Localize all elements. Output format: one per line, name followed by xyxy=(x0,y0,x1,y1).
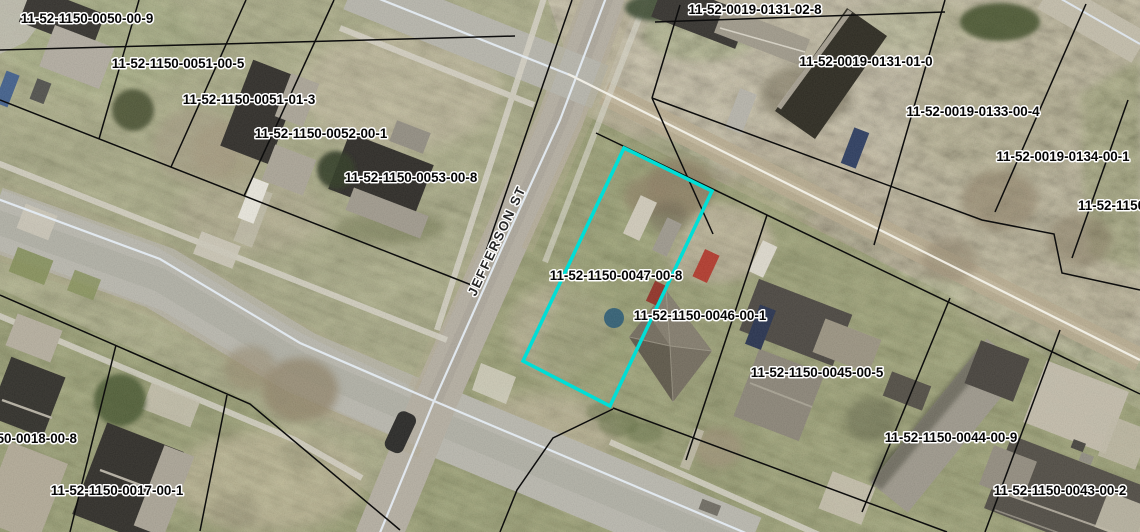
svg-text:11-52-0019-0133-00-4: 11-52-0019-0133-00-4 xyxy=(906,104,1040,119)
svg-text:11-52-1150-0050-00-9: 11-52-1150-0050-00-9 xyxy=(21,11,154,26)
svg-text:11-52-1150-0045-00-5: 11-52-1150-0045-00-5 xyxy=(751,365,884,380)
svg-text:11-52-0019-0131-02-8: 11-52-0019-0131-02-8 xyxy=(688,2,822,17)
svg-text:11-52-1150-0053-00-8: 11-52-1150-0053-00-8 xyxy=(345,170,478,185)
svg-text:11-52-1150-0051-01-3: 11-52-1150-0051-01-3 xyxy=(183,92,316,107)
svg-text:11-52-1150-0017-00-1: 11-52-1150-0017-00-1 xyxy=(51,483,184,498)
svg-text:11-52-1150-0047-00-8: 11-52-1150-0047-00-8 xyxy=(550,268,683,283)
svg-text:11-52-1150-0051-00-5: 11-52-1150-0051-00-5 xyxy=(112,56,245,71)
svg-text:11-52-1150-0044-00-9: 11-52-1150-0044-00-9 xyxy=(885,430,1018,445)
svg-text:11-52-1150-0052-00-1: 11-52-1150-0052-00-1 xyxy=(255,126,388,141)
svg-text:11-52-1150-0043-00-2: 11-52-1150-0043-00-2 xyxy=(994,483,1127,498)
svg-text:11-52-1150-0046-00-1: 11-52-1150-0046-00-1 xyxy=(634,308,767,323)
svg-text:11-52-0019-0134-00-1: 11-52-0019-0134-00-1 xyxy=(996,149,1130,164)
svg-text:11-52-1150-00: 11-52-1150-00 xyxy=(1078,198,1140,213)
svg-text:11-52-0019-0131-01-0: 11-52-0019-0131-01-0 xyxy=(799,54,932,69)
svg-text:11-52-1150-0018-00-8: 11-52-1150-0018-00-8 xyxy=(0,431,78,446)
